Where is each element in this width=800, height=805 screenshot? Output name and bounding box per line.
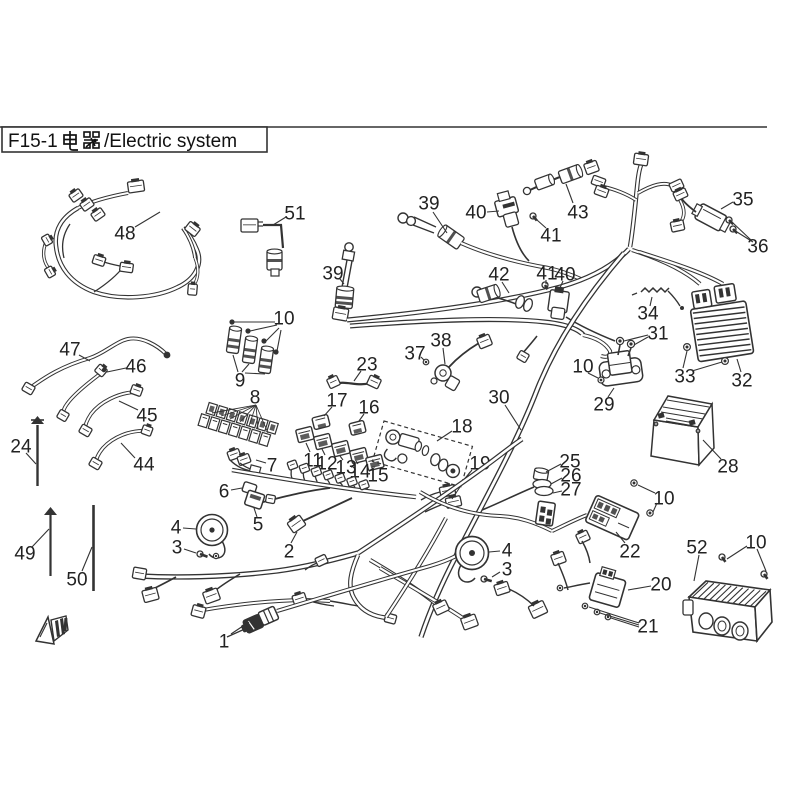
svg-text:20: 20 bbox=[650, 575, 671, 596]
svg-text:16: 16 bbox=[358, 398, 379, 419]
svg-text:32: 32 bbox=[731, 371, 752, 392]
svg-text:35: 35 bbox=[732, 190, 753, 211]
svg-text:33: 33 bbox=[674, 367, 695, 388]
svg-text:9: 9 bbox=[235, 371, 246, 392]
svg-text:44: 44 bbox=[133, 455, 155, 476]
svg-text:28: 28 bbox=[717, 457, 738, 478]
svg-text:22: 22 bbox=[619, 542, 640, 563]
svg-text:52: 52 bbox=[686, 538, 707, 559]
svg-text:18: 18 bbox=[451, 417, 472, 438]
svg-text:38: 38 bbox=[430, 331, 451, 352]
svg-text:48: 48 bbox=[114, 224, 135, 245]
svg-text:3: 3 bbox=[172, 538, 183, 559]
svg-text:10: 10 bbox=[745, 533, 766, 554]
svg-text:50: 50 bbox=[66, 570, 87, 591]
svg-text:24: 24 bbox=[10, 437, 32, 458]
svg-text:40: 40 bbox=[465, 203, 486, 224]
svg-text:3: 3 bbox=[502, 560, 513, 581]
svg-text:17: 17 bbox=[326, 391, 347, 412]
svg-text:41: 41 bbox=[540, 226, 561, 247]
svg-text:10: 10 bbox=[653, 489, 674, 510]
svg-text:1: 1 bbox=[219, 632, 230, 653]
svg-text:7: 7 bbox=[267, 456, 278, 477]
svg-text:47: 47 bbox=[59, 340, 80, 361]
svg-text:5: 5 bbox=[253, 515, 264, 536]
svg-text:2: 2 bbox=[284, 542, 295, 563]
svg-text:4: 4 bbox=[502, 541, 513, 562]
svg-text:46: 46 bbox=[125, 357, 146, 378]
svg-text:30: 30 bbox=[488, 388, 509, 409]
svg-text:39: 39 bbox=[322, 264, 343, 285]
svg-text:27: 27 bbox=[560, 480, 581, 501]
svg-text:15: 15 bbox=[367, 466, 388, 487]
svg-text:4: 4 bbox=[171, 518, 182, 539]
svg-text:39: 39 bbox=[418, 194, 439, 215]
svg-text:F15-1: F15-1 bbox=[8, 131, 58, 152]
svg-text:37: 37 bbox=[404, 344, 425, 365]
svg-text:43: 43 bbox=[567, 203, 588, 224]
svg-text:34: 34 bbox=[637, 304, 659, 325]
svg-text:6: 6 bbox=[219, 482, 230, 503]
svg-text:29: 29 bbox=[593, 395, 614, 416]
svg-text:21: 21 bbox=[637, 617, 658, 638]
svg-text:40: 40 bbox=[554, 265, 575, 286]
svg-text:/Electric system: /Electric system bbox=[104, 131, 237, 152]
svg-text:51: 51 bbox=[284, 204, 305, 225]
svg-text:42: 42 bbox=[488, 265, 509, 286]
svg-text:10: 10 bbox=[273, 309, 294, 330]
svg-text:31: 31 bbox=[647, 324, 668, 345]
